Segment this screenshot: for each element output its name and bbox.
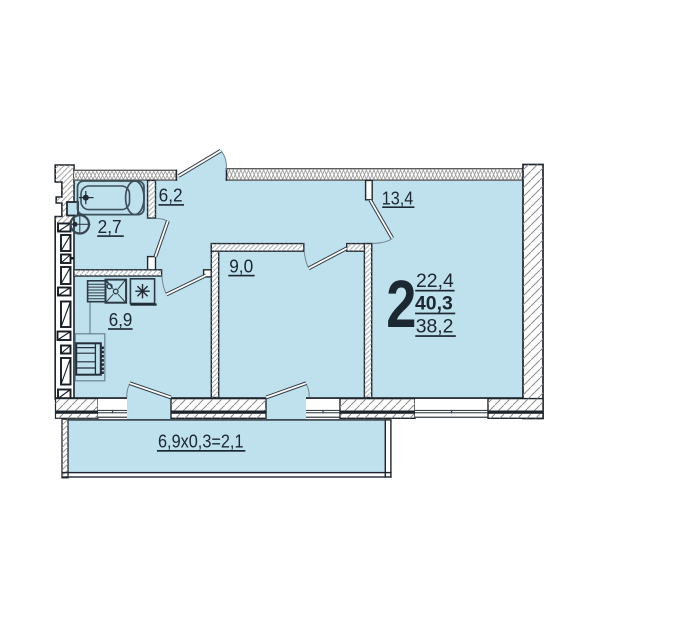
svg-text:6,9x0,3=2,1: 6,9x0,3=2,1: [158, 431, 244, 452]
svg-text:9,0: 9,0: [229, 256, 253, 277]
svg-text:2: 2: [386, 266, 416, 341]
svg-text:2,7: 2,7: [98, 216, 122, 237]
svg-text:22,4: 22,4: [416, 270, 454, 292]
svg-text:6,2: 6,2: [159, 185, 183, 206]
svg-text:13,4: 13,4: [382, 188, 414, 209]
svg-text:40,3: 40,3: [415, 293, 453, 315]
svg-text:38,2: 38,2: [416, 315, 454, 337]
svg-text:6,9: 6,9: [109, 309, 133, 330]
